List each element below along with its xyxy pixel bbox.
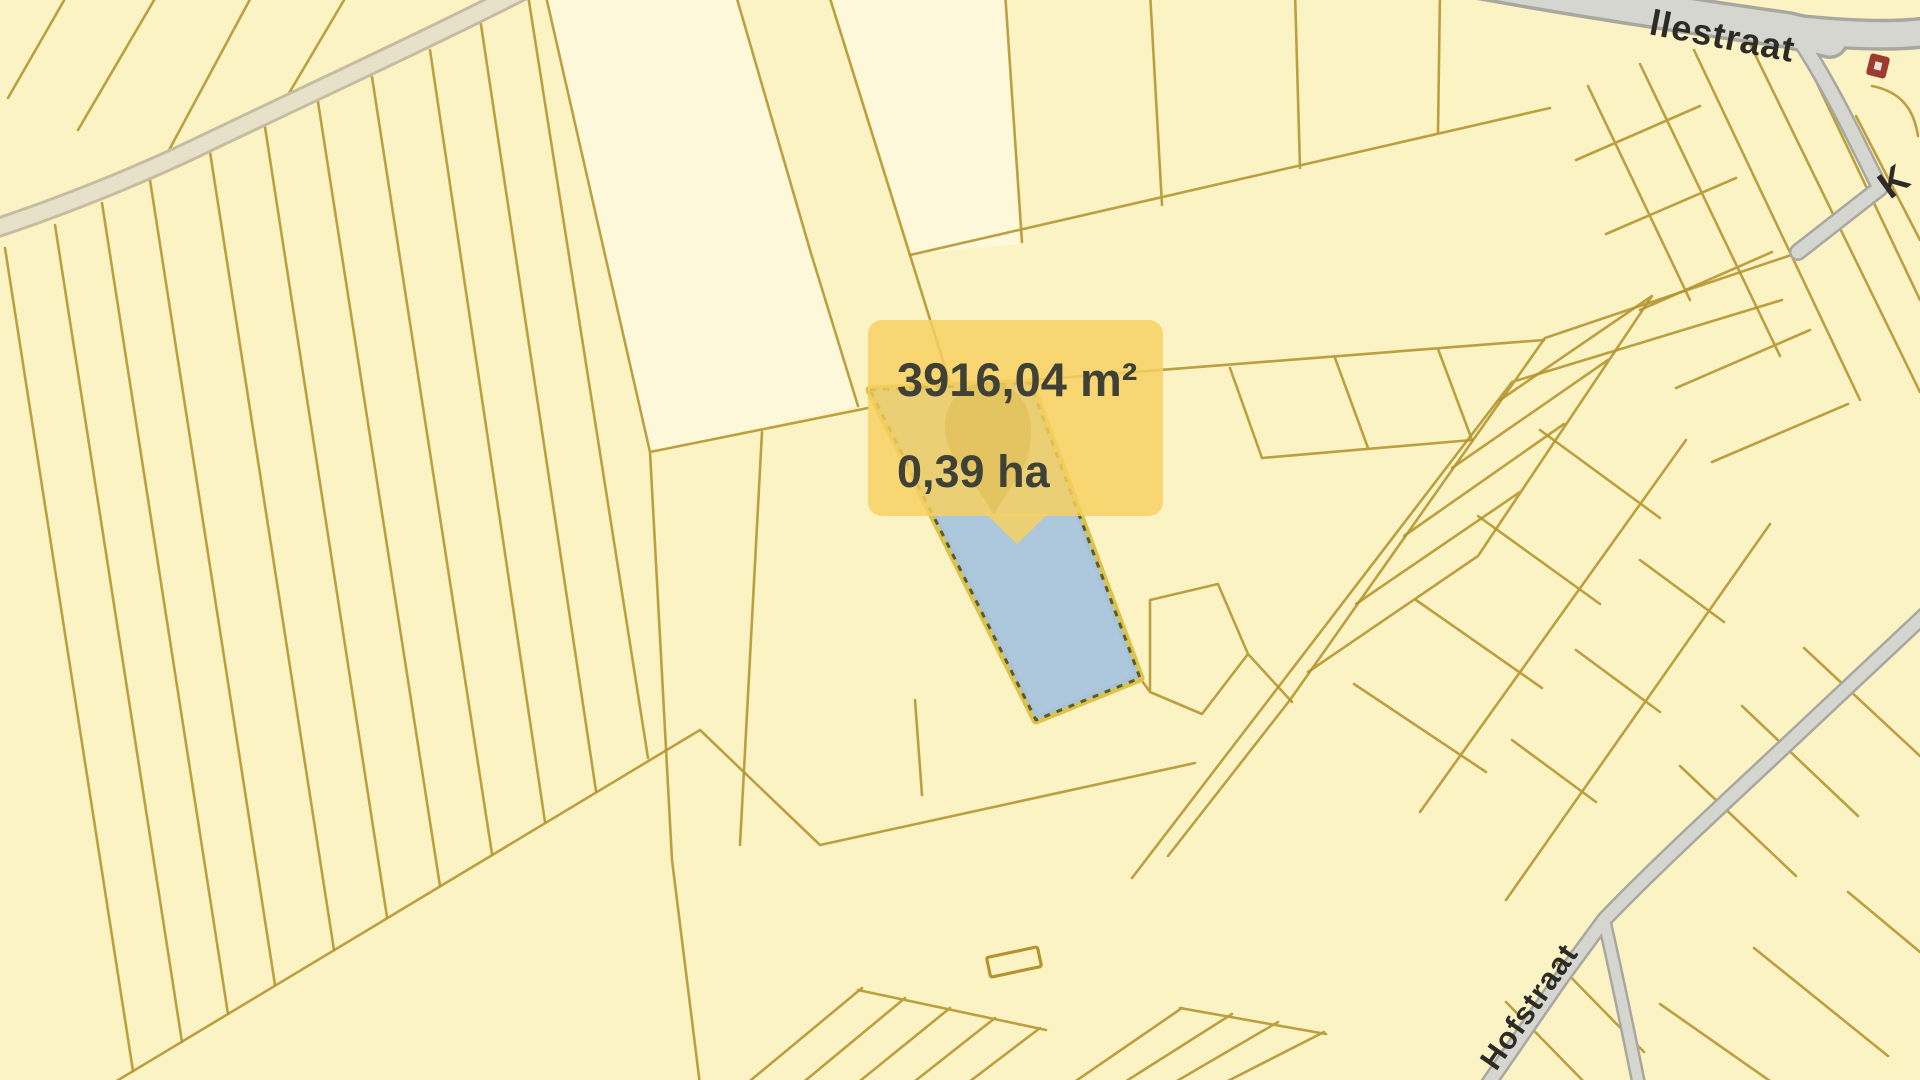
map-canvas[interactable]: 3916,04 m² 0,39 ha llestraat Hofstraat K (0, 0, 1920, 1080)
road-corner-surface (1800, 30, 1920, 35)
area-tooltip: 3916,04 m² 0,39 ha (868, 320, 1163, 544)
area-value-m2: 3916,04 m² (897, 353, 1137, 406)
area-value-ha: 0,39 ha (897, 446, 1051, 497)
